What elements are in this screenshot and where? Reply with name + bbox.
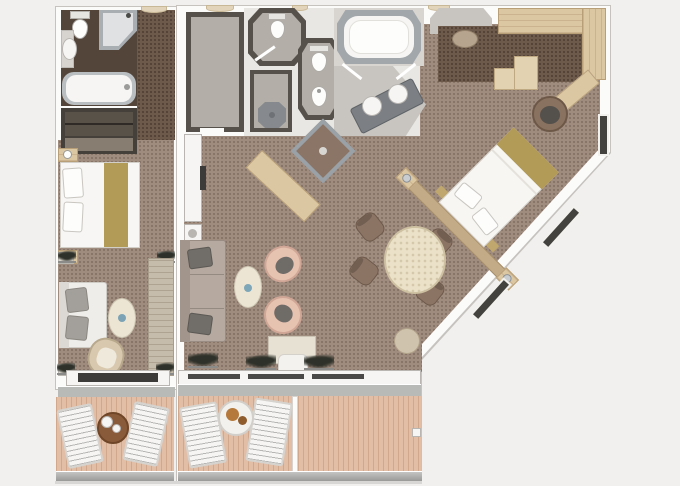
suite-entry-door bbox=[206, 5, 234, 12]
plate-icon bbox=[112, 424, 121, 433]
table-decor-icon bbox=[244, 284, 252, 292]
plant bbox=[58, 250, 76, 263]
pillow bbox=[62, 167, 84, 198]
pillow bbox=[65, 287, 90, 314]
balcony-light-icon bbox=[412, 428, 421, 437]
pillow bbox=[187, 312, 214, 335]
window bbox=[600, 116, 607, 154]
plant bbox=[188, 352, 218, 368]
pillow bbox=[62, 201, 84, 232]
bed-runner bbox=[104, 163, 128, 247]
plate-icon bbox=[101, 416, 113, 428]
railing bbox=[178, 471, 422, 481]
closet-rod bbox=[65, 123, 133, 125]
dining-table bbox=[384, 226, 446, 294]
closet-door-gap bbox=[200, 128, 224, 133]
window bbox=[188, 374, 240, 379]
toilet-tank bbox=[268, 13, 286, 20]
balcony-threshold bbox=[178, 384, 421, 396]
floor-plan bbox=[0, 0, 680, 486]
plant bbox=[304, 354, 334, 370]
shower-head-icon bbox=[126, 13, 131, 18]
lamp-icon bbox=[63, 150, 72, 159]
step-dresser bbox=[494, 68, 516, 90]
railing bbox=[56, 471, 174, 481]
shadow-strip bbox=[55, 481, 422, 484]
drain-icon bbox=[319, 147, 327, 155]
pillow bbox=[187, 246, 214, 269]
cushion-seam bbox=[190, 274, 224, 275]
toilet-tank bbox=[309, 45, 329, 52]
console-cabinet bbox=[148, 258, 174, 376]
balcony-threshold bbox=[58, 386, 175, 397]
window bbox=[248, 374, 304, 379]
sink bbox=[62, 38, 77, 60]
balcony-divider bbox=[292, 396, 298, 473]
drain-icon bbox=[269, 112, 275, 118]
spa-bathtub-basin bbox=[349, 20, 409, 54]
kettle-icon bbox=[188, 229, 197, 238]
bathtub bbox=[66, 75, 132, 102]
ottoman bbox=[452, 30, 478, 48]
step-dresser bbox=[514, 56, 538, 90]
pouf bbox=[394, 328, 420, 354]
walk-in-closet bbox=[186, 12, 244, 132]
guest-entry-door bbox=[141, 6, 167, 13]
plant bbox=[246, 354, 276, 370]
table-decor-icon bbox=[118, 314, 126, 322]
desk-chair-seat bbox=[540, 106, 560, 124]
tv bbox=[200, 166, 206, 190]
guest-corridor bbox=[137, 10, 175, 140]
toilet-tank bbox=[70, 11, 90, 19]
cushion-seam bbox=[190, 308, 224, 309]
wardrobe-shelves bbox=[582, 8, 606, 80]
bidet-faucet-icon bbox=[317, 89, 321, 93]
window bbox=[312, 374, 364, 379]
food-plate-icon bbox=[238, 416, 247, 425]
tv bbox=[78, 373, 158, 382]
tub-faucet-icon bbox=[124, 84, 130, 90]
pillow bbox=[65, 315, 89, 341]
